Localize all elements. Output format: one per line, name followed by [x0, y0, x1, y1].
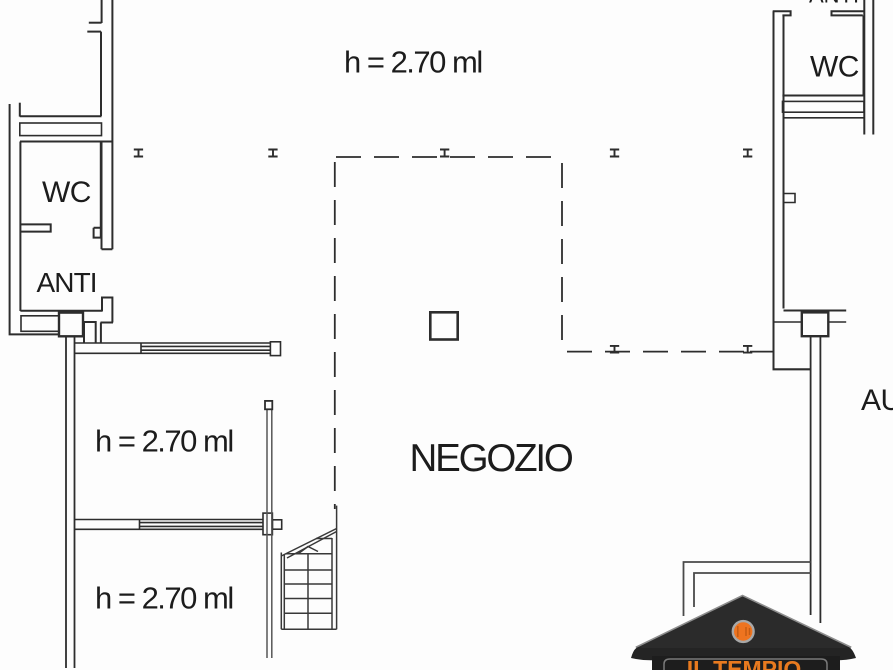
svg-text:h = 2.70 ml: h = 2.70 ml	[95, 581, 233, 616]
svg-text:h = 2.70 ml: h = 2.70 ml	[95, 424, 233, 459]
svg-text:NEGOZIO: NEGOZIO	[410, 437, 573, 480]
svg-text:WC: WC	[810, 51, 859, 84]
svg-text:AU: AU	[861, 384, 893, 417]
svg-text:ANTI: ANTI	[37, 267, 97, 298]
svg-text:WC: WC	[42, 176, 91, 209]
svg-text:ANTI: ANTI	[809, 0, 859, 8]
svg-text:IL TEMPIO: IL TEMPIO	[687, 656, 802, 670]
svg-text:h = 2.70 ml: h = 2.70 ml	[344, 45, 482, 80]
